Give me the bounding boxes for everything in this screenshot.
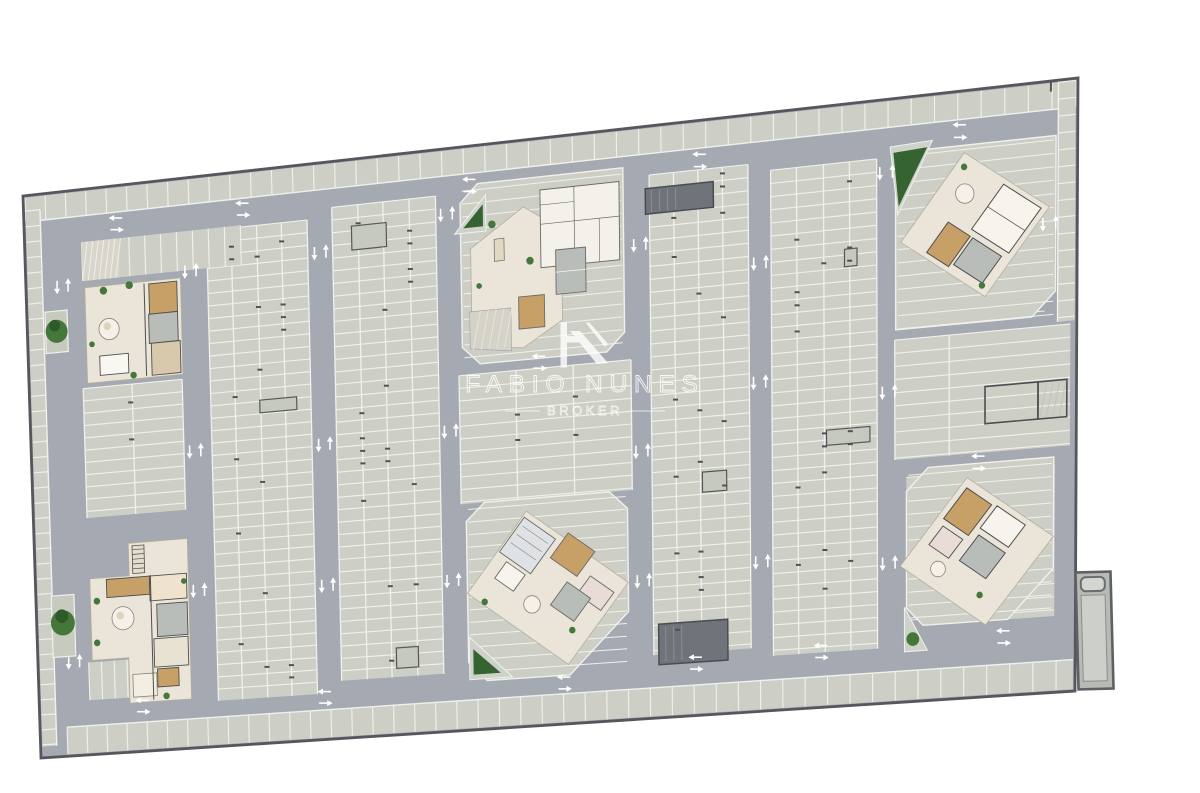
svg-text:BROKER: BROKER xyxy=(547,403,623,418)
svg-text:FABIO NUNES: FABIO NUNES xyxy=(465,371,705,398)
